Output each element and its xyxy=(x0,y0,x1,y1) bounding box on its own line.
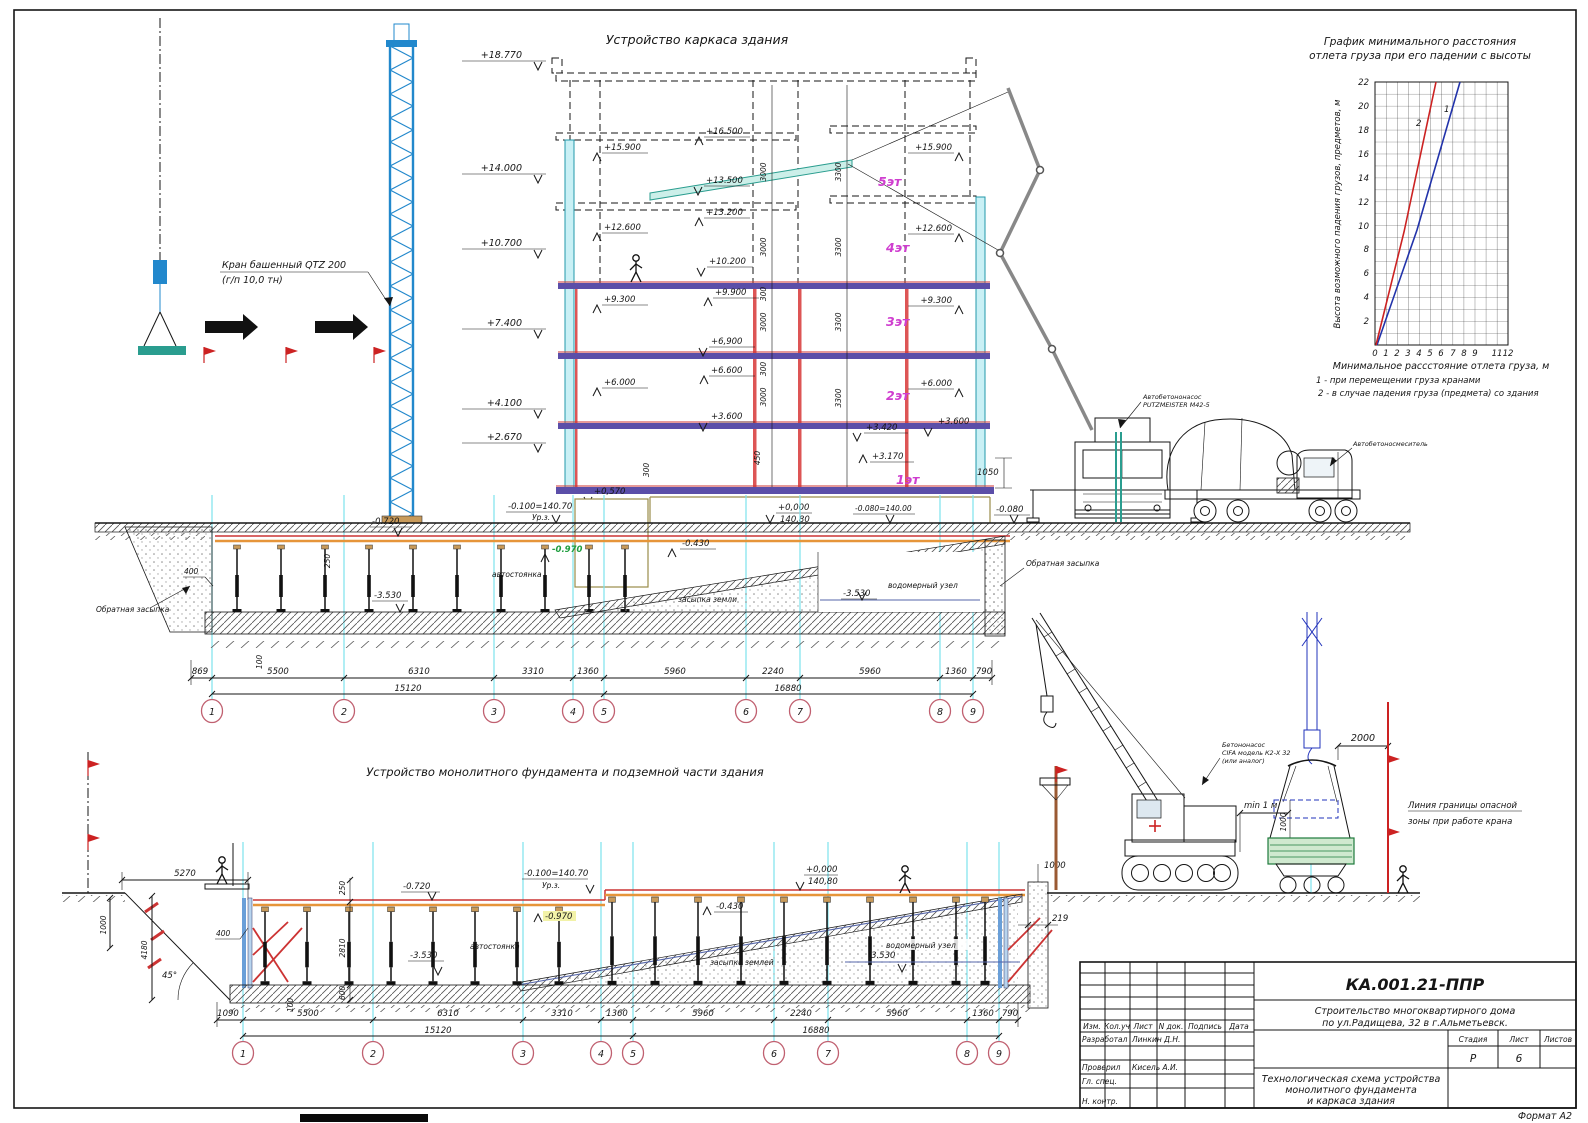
dim-value: 2240 xyxy=(790,1009,812,1019)
drawing-name: Технологическая схема устройства xyxy=(1262,1074,1441,1085)
min-gap-label: min 1 м xyxy=(1244,801,1278,811)
format-label: Формат А2 xyxy=(1518,1111,1572,1122)
axis-number: 7 xyxy=(825,1049,831,1060)
svg-text:+16.500: +16.500 xyxy=(706,127,743,137)
dim-total: 16880 xyxy=(802,1026,829,1036)
svg-text:+10.200: +10.200 xyxy=(709,257,746,267)
floor-label: 4эт xyxy=(885,240,910,255)
concrete-pump-boom xyxy=(997,88,1093,430)
tb-stadia-value: Р xyxy=(1470,1053,1477,1065)
dim-value: 5960 xyxy=(859,667,881,677)
svg-text:+9.300: +9.300 xyxy=(604,295,635,305)
pump2-label: Бетононасос xyxy=(1222,741,1266,749)
dim-value: 2240 xyxy=(762,667,784,677)
svg-text:+6.000: +6.000 xyxy=(921,379,952,389)
backfill-wedge-left xyxy=(125,527,212,632)
right-wall xyxy=(976,197,985,490)
dim-value: 3310 xyxy=(551,1009,573,1019)
dim-label: 2810 xyxy=(338,938,347,957)
svg-text:+6.000: +6.000 xyxy=(604,378,635,388)
x-tick: 4 xyxy=(1416,349,1421,359)
crane-label: Кран башенный QTZ 200 xyxy=(222,260,346,271)
svg-text:+6,900: +6,900 xyxy=(711,337,742,347)
dashed-columns xyxy=(570,80,970,283)
elev-label: -0.720 xyxy=(403,882,430,892)
formwork-braces-left xyxy=(253,922,302,982)
y-tick: 10 xyxy=(1358,222,1369,232)
backfill-label: Обратная засыпка xyxy=(1026,559,1100,568)
elev-label: -0.720 xyxy=(372,517,399,527)
tower-crane: Кран башенный QTZ 200 (г/п 10,0 тн) xyxy=(138,18,422,523)
curve-label: 2 xyxy=(1416,119,1421,129)
water-unit-label: водомерный узел xyxy=(886,941,956,950)
backfill-label: Обратная засыпка xyxy=(96,605,170,614)
upper-foundation: Обратная засыпка Обратная засыпка автост… xyxy=(95,495,1410,700)
y-tick: 12 xyxy=(1358,198,1369,208)
elev-label: +0,000 xyxy=(806,865,837,875)
svg-text:-0.080=140.00: -0.080=140.00 xyxy=(855,504,912,513)
elevation-marks-left: +18.770 +14.000 +10.700 +7.400 +4.100 +2… xyxy=(462,50,546,452)
svg-text:300: 300 xyxy=(759,287,768,302)
svg-text:+12.600: +12.600 xyxy=(915,224,952,234)
axis-number: 9 xyxy=(970,707,976,718)
crawler-crane-scene: Бетононасос CIFA модель К2-Х 32 (или ана… xyxy=(1032,612,1522,902)
flag-icon xyxy=(1388,755,1400,771)
move-arrow-icon xyxy=(315,314,368,340)
mixer-truck: Автобетоносмеситель xyxy=(1165,418,1428,522)
flag-icon xyxy=(88,760,100,776)
x-tick: 3 xyxy=(1405,349,1410,359)
pump2-label: CIFA модель К2-Х 32 xyxy=(1222,749,1290,757)
elev-label: Ур.з. xyxy=(542,881,560,890)
danger-boundary: Линия границы опасной зоны при работе кр… xyxy=(1388,702,1522,893)
elev-label: -3.530 xyxy=(843,589,870,599)
angle-label: 45° xyxy=(162,971,177,981)
axis-number: 2 xyxy=(370,1049,376,1060)
dim-total: 16880 xyxy=(774,684,801,694)
axis-number: 4 xyxy=(598,1049,604,1060)
x-tick: 0 xyxy=(1372,349,1377,359)
axis-number: 5 xyxy=(630,1049,636,1060)
crawler-crane xyxy=(1032,613,1238,890)
tb-listov-label: Листов xyxy=(1543,1035,1572,1044)
x-tick: 12 xyxy=(1503,349,1514,359)
axis-number: 4 xyxy=(570,707,576,718)
dim-value: 5960 xyxy=(886,1009,908,1019)
dim-value: 869 xyxy=(192,667,208,677)
left-wall xyxy=(565,140,574,490)
worker-icon xyxy=(630,255,642,282)
floor-label: 2эт xyxy=(886,388,910,403)
axis-number: 5 xyxy=(601,707,607,718)
dim-label: 600 xyxy=(338,986,347,1001)
svg-text:+3.600: +3.600 xyxy=(711,412,742,422)
dim-label: 1000 xyxy=(1279,812,1288,831)
elev-label-green: -0.970 xyxy=(552,545,582,555)
flag-icon xyxy=(286,347,298,363)
svg-text:+12.600: +12.600 xyxy=(604,223,641,233)
dim-label: 1000 xyxy=(99,915,108,934)
axis-number: 2 xyxy=(341,707,347,718)
x-tick: 2 xyxy=(1394,349,1399,359)
dim-value: 6310 xyxy=(408,667,430,677)
elev-label: -0.100=140.70 xyxy=(508,502,572,512)
x-tick: 1 xyxy=(1383,349,1388,359)
floor-label: 1эт xyxy=(896,472,920,487)
dim-label: 250 xyxy=(338,881,347,896)
y-tick: 2 xyxy=(1364,317,1369,327)
axis-number: 1 xyxy=(240,1049,246,1060)
crawler-tracks xyxy=(1122,856,1238,890)
elevation-marks-right: +15.900 +12.600 +9.300 +6.000 +3.600 -0.… xyxy=(908,143,1030,523)
project-name: Строительство многоквартирного дома xyxy=(1315,1006,1516,1017)
x-tick: 6 xyxy=(1438,349,1444,359)
axis-number: 7 xyxy=(797,707,803,718)
pump-label: PUTZMEISTER M42-5 xyxy=(1143,401,1210,409)
tb-col: Кол.уч xyxy=(1104,1022,1131,1031)
svg-text:3300: 3300 xyxy=(834,237,843,256)
svg-text:+13.500: +13.500 xyxy=(706,176,743,186)
lower-section-title: Устройство монолитного фундамента и подз… xyxy=(366,765,764,779)
svg-text:+0,000: +0,000 xyxy=(778,503,809,513)
hoisted-load xyxy=(138,346,186,355)
axis-number: 6 xyxy=(743,707,749,718)
pump2-label: (или аналог) xyxy=(1222,757,1265,765)
crane-label: (г/п 10,0 тн) xyxy=(222,275,283,286)
axis-number: 9 xyxy=(996,1049,1002,1060)
upper-section-title: Устройство каркаса здания xyxy=(606,32,789,47)
right-pit-wall xyxy=(1028,882,1048,1008)
axis-number: 8 xyxy=(964,1049,970,1060)
svg-text:+15.900: +15.900 xyxy=(915,143,952,153)
x-tick: 5 xyxy=(1427,349,1432,359)
svg-text:3000: 3000 xyxy=(759,162,768,181)
tb-name: Линкин Д.Н. xyxy=(1131,1035,1180,1044)
axis-bubbles-upper: 1 2 3 4 5 6 7 8 9 xyxy=(202,700,984,723)
dim-label: 400 xyxy=(184,567,199,576)
svg-text:+13.200: +13.200 xyxy=(706,208,743,218)
svg-text:3000: 3000 xyxy=(759,387,768,406)
formwork-right xyxy=(998,898,1002,988)
elev-label: -0.430 xyxy=(682,539,709,549)
hoisted-panel xyxy=(650,160,852,200)
elev-label: Ур.з. xyxy=(532,513,550,522)
svg-text:+3.600: +3.600 xyxy=(938,417,969,427)
basement-outline xyxy=(650,497,990,523)
tb-col: Подпись xyxy=(1188,1022,1222,1031)
tb-row: Разработал xyxy=(1082,1035,1128,1044)
svg-text:300: 300 xyxy=(642,463,651,478)
tb-col: Лист xyxy=(1132,1022,1153,1031)
axis-number: 8 xyxy=(937,707,943,718)
svg-text:-0.080: -0.080 xyxy=(996,505,1023,515)
chart-grid xyxy=(1375,82,1508,345)
drawing-name: монолитного фундамента xyxy=(1285,1085,1417,1096)
drawing-name: и каркаса здания xyxy=(1307,1096,1395,1107)
elev-label: -3.530 xyxy=(868,951,895,961)
dim-value: 1360 xyxy=(606,1009,628,1019)
doc-number: КА.001.21-ППР xyxy=(1346,975,1485,994)
tb-col: Изм. xyxy=(1083,1022,1101,1031)
svg-text:+2.670: +2.670 xyxy=(487,432,522,443)
tb-stadia-label: Стадия xyxy=(1459,1035,1488,1044)
svg-text:+6.600: +6.600 xyxy=(711,366,742,376)
tb-col: Дата xyxy=(1228,1022,1249,1031)
y-tick: 20 xyxy=(1358,102,1369,112)
svg-text:3000: 3000 xyxy=(759,237,768,256)
dim-value: 6310 xyxy=(437,1009,459,1019)
parking-label: автостоянка xyxy=(470,942,520,951)
floor-label: 3эт xyxy=(886,314,910,329)
svg-text:+15.900: +15.900 xyxy=(604,143,641,153)
dim-total: 15120 xyxy=(424,1026,451,1036)
chart-ylabel: Высота возможного падения грузов, предме… xyxy=(1333,99,1343,328)
svg-text:3300: 3300 xyxy=(834,312,843,331)
roof-slab-dashed xyxy=(556,73,976,81)
ramp-pit xyxy=(575,499,648,587)
project-name: по ул.Радищева, 32 в г.Альметьевск. xyxy=(1322,1018,1508,1029)
dim-value: 1360 xyxy=(945,667,967,677)
axis-bubbles-lower: 1 2 3 4 5 6 7 8 9 xyxy=(233,1042,1010,1065)
dim-label: 2000 xyxy=(1351,733,1375,744)
title-block: Изм. Кол.уч Лист N док. Подпись Дата Раз… xyxy=(1080,962,1576,1108)
parking-label: автостоянка xyxy=(492,570,542,579)
dim-value: 3310 xyxy=(522,667,544,677)
tb-row: Гл. спец. xyxy=(1082,1077,1117,1086)
dim-value: 5500 xyxy=(267,667,289,677)
danger-label: Линия границы опасной xyxy=(1407,801,1518,811)
dim-value: 1360 xyxy=(577,667,599,677)
move-arrow-icon xyxy=(205,314,258,340)
y-tick: 14 xyxy=(1358,174,1369,184)
svg-text:+9.900: +9.900 xyxy=(715,288,746,298)
dim-label: 100 xyxy=(286,998,295,1013)
elev-label: -3.530 xyxy=(410,951,437,961)
chart-title: отлета груза при его падении с высоты xyxy=(1309,50,1531,62)
axis-number: 1 xyxy=(209,707,215,718)
chart-legend: 1 - при перемещении груза кранами xyxy=(1316,376,1481,386)
dim-label: 100 xyxy=(255,655,264,670)
curve-label: 1 xyxy=(1444,105,1449,115)
crane-mast-lattice xyxy=(390,46,413,518)
drawing-sheet: Устройство каркаса здания Устройство мон… xyxy=(0,0,1588,1123)
boom-lattice xyxy=(1044,632,1146,787)
worker-icon xyxy=(899,866,911,893)
elev-label: -0.100=140.70 xyxy=(524,869,588,879)
soil-fill-label: засыпка землей xyxy=(710,958,774,967)
elev-label: -0.430 xyxy=(716,902,743,912)
mixer-drum xyxy=(1167,419,1295,490)
soil-fill-label: засыпка земли xyxy=(678,595,737,604)
technical-drawing: Устройство каркаса здания Устройство мон… xyxy=(0,0,1588,1123)
flag-icon xyxy=(1056,766,1068,782)
axis-number: 6 xyxy=(771,1049,777,1060)
axis-number: 3 xyxy=(491,707,497,718)
svg-text:450: 450 xyxy=(753,451,762,466)
tb-row: Проверил xyxy=(1082,1063,1121,1072)
svg-text:3300: 3300 xyxy=(834,162,843,181)
svg-text:+0,570: +0,570 xyxy=(594,487,625,497)
chart-legend: 2 - в случае падения груза (предмета) со… xyxy=(1318,389,1539,399)
y-tick: 8 xyxy=(1364,245,1370,255)
dim-label: 250 xyxy=(323,554,332,569)
dim-value: 1360 xyxy=(972,1009,994,1019)
flag-icon xyxy=(374,347,386,363)
y-tick: 16 xyxy=(1358,150,1369,160)
svg-text:+14.000: +14.000 xyxy=(481,163,522,174)
dim-value: 5500 xyxy=(297,1009,319,1019)
tb-name: Кисель А.И. xyxy=(1132,1063,1178,1072)
chart-xlabel: Минимальное рассстояние отлета груза, м xyxy=(1333,361,1550,372)
elev-label: -3.530 xyxy=(374,591,401,601)
elev-label: -0.970 xyxy=(545,912,572,922)
svg-text:+3.420: +3.420 xyxy=(866,423,897,433)
y-tick: 6 xyxy=(1364,269,1370,279)
floor-label: 5эт xyxy=(878,174,902,189)
dim-label: 5270 xyxy=(174,869,196,879)
x-tick: 11 xyxy=(1492,349,1503,359)
svg-text:3000: 3000 xyxy=(759,312,768,331)
hook-block xyxy=(153,260,167,284)
water-unit-label: водомерный узел xyxy=(888,581,958,590)
mixer-wheels xyxy=(1194,500,1357,522)
y-tick: 22 xyxy=(1358,78,1369,88)
svg-text:3300: 3300 xyxy=(834,388,843,407)
danger-label: зоны при работе крана xyxy=(1408,817,1512,827)
svg-text:300: 300 xyxy=(759,362,768,377)
svg-text:+3.170: +3.170 xyxy=(872,452,903,462)
shoring-props-upper xyxy=(233,545,630,612)
tb-sheet-value: 6 xyxy=(1516,1053,1523,1065)
x-tick: 8 xyxy=(1461,349,1467,359)
x-tick: 7 xyxy=(1450,349,1456,359)
pump-label: Автобетононасос xyxy=(1142,393,1202,401)
x-tick: 9 xyxy=(1472,349,1477,359)
svg-text:+18.770: +18.770 xyxy=(481,50,522,61)
mixer-label: Автобетоносмеситель xyxy=(1352,440,1428,448)
dim-value: 1090 xyxy=(217,1009,239,1019)
tb-col: N док. xyxy=(1159,1022,1184,1031)
dim-value: 790 xyxy=(976,667,992,677)
ground-band xyxy=(95,523,1410,532)
upper-dimension-chain: 869 5500 6310 3310 1360 5960 2240 5960 1… xyxy=(188,660,995,723)
pit-floor xyxy=(205,612,1005,634)
scan-artifact-bar xyxy=(300,1114,428,1122)
fall-distance-chart: График минимального расстояния отлета гр… xyxy=(1309,36,1549,399)
svg-text:+10.700: +10.700 xyxy=(481,238,522,249)
dim-value: 5960 xyxy=(692,1009,714,1019)
formwork-left xyxy=(242,898,246,988)
flag-icon xyxy=(204,347,216,363)
tb-list-label: Лист xyxy=(1508,1035,1529,1044)
right-pit-wall xyxy=(985,540,1005,636)
flag-icon xyxy=(88,834,100,850)
svg-text:1050: 1050 xyxy=(977,468,999,478)
y-tick: 18 xyxy=(1358,126,1369,136)
dim-label: 4180 xyxy=(140,940,149,959)
elevation-marks-inner: +15.900 +12.600 +9.300 +6.000 +0,570 xyxy=(584,143,648,505)
svg-text:+4.100: +4.100 xyxy=(487,398,522,409)
elev-label: 140,80 xyxy=(808,877,838,887)
dim-value: 5960 xyxy=(664,667,686,677)
chart-title: График минимального расстояния xyxy=(1324,36,1516,48)
pump-truck: Автобетононасос PUTZMEISTER M42-5 xyxy=(1027,393,1210,522)
worker-icon xyxy=(1397,866,1409,893)
svg-text:+9.300: +9.300 xyxy=(921,296,952,306)
tb-row: Н. контр. xyxy=(1082,1097,1118,1106)
y-tick: 4 xyxy=(1364,293,1369,303)
dim-label: 400 xyxy=(216,929,231,938)
lower-foundation: 5270 1000 4180 45° 400 xyxy=(62,752,1068,1042)
dim-label: 219 xyxy=(1052,914,1068,924)
dim-value: 790 xyxy=(1002,1009,1018,1019)
svg-text:+7.400: +7.400 xyxy=(487,318,522,329)
axis-number: 3 xyxy=(520,1049,526,1060)
flag-icon xyxy=(1388,828,1400,844)
dim-total: 15120 xyxy=(394,684,421,694)
